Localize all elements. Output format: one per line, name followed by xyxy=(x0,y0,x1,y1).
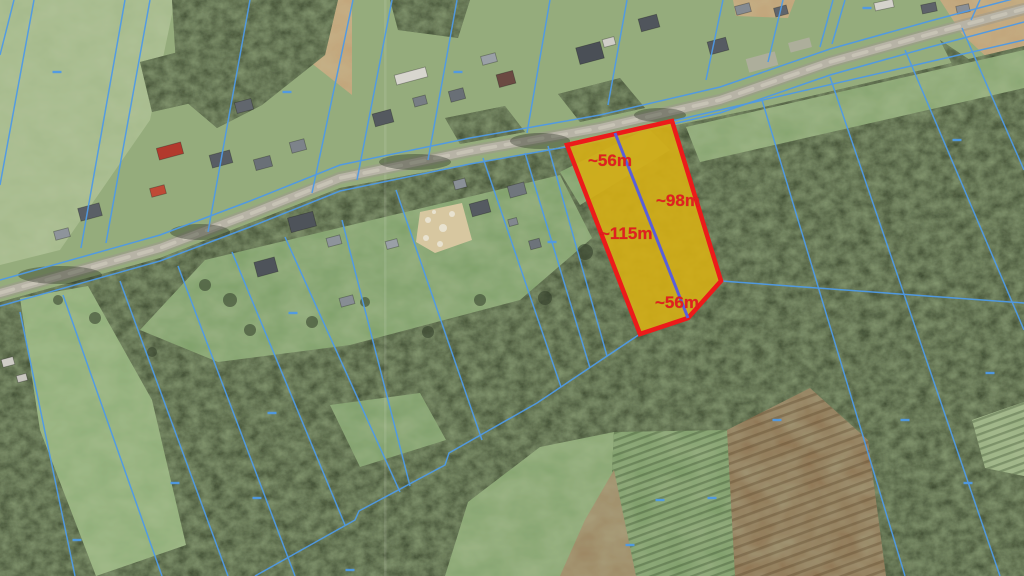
tree xyxy=(422,326,434,338)
measurement-label: ~56m xyxy=(588,151,632,170)
map-viewport[interactable]: ~56m~98m~115m~56m xyxy=(0,0,1024,576)
tree xyxy=(89,312,101,324)
sand-spot xyxy=(437,241,443,247)
measurement-label: ~115m xyxy=(600,224,652,243)
tree xyxy=(538,291,552,305)
ortho-seam xyxy=(384,0,387,576)
sand-spot xyxy=(449,211,455,217)
sand-spot xyxy=(423,235,429,241)
measurement-label: ~98m xyxy=(656,191,700,210)
sand-spot xyxy=(439,224,447,232)
tree xyxy=(306,316,318,328)
sand-spot xyxy=(425,217,431,223)
tree xyxy=(474,294,486,306)
tree xyxy=(244,324,256,336)
sand-spot xyxy=(432,210,436,214)
tree xyxy=(199,279,211,291)
aerial-map-canvas[interactable]: ~56m~98m~115m~56m xyxy=(0,0,1024,576)
tree xyxy=(147,347,157,357)
tree xyxy=(223,293,237,307)
tree xyxy=(53,295,63,305)
measurement-label: ~56m xyxy=(655,293,699,312)
